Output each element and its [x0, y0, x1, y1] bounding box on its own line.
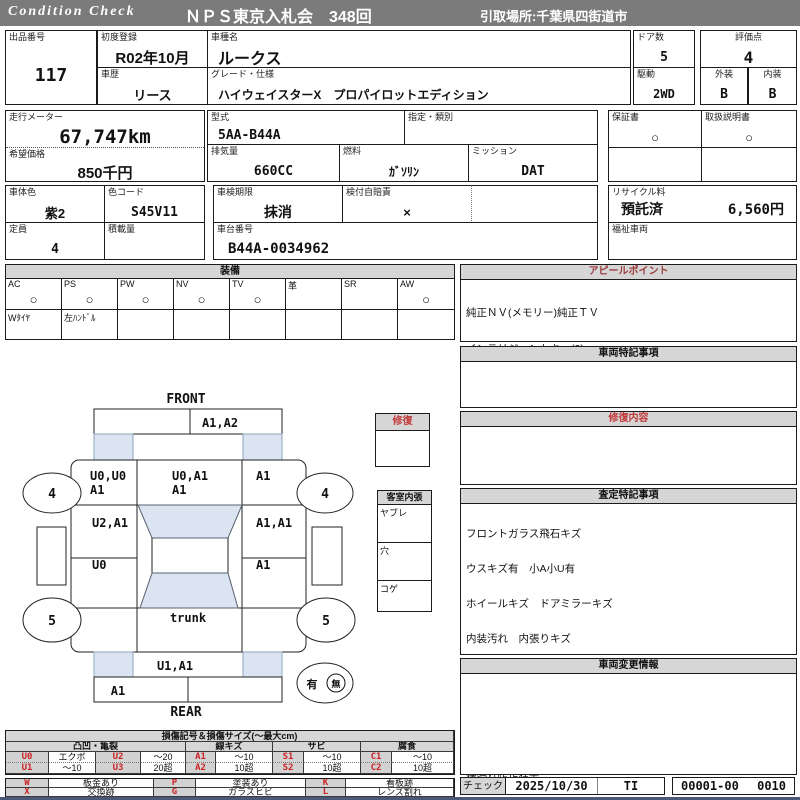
panel-rear-door-right: A1 [256, 558, 270, 572]
equipment-note-ps: 左ﾊﾝﾄﾞﾙ [62, 309, 118, 340]
damage-marks-table: W 板金あり P 塗装あり K 看板跡 X 交換跡 G ガラスヒビ L レンズ割… [5, 778, 455, 798]
legend-code: C2 [361, 763, 392, 774]
lot-number-value: 117 [6, 31, 96, 112]
cabin-interior-box: 客室内張 ヤブレ 穴 コゲ [377, 490, 432, 612]
displacement-label: 排気量 [211, 146, 238, 156]
legend-code: S2 [273, 763, 304, 774]
recycle-fee-label: リサイクル料 [612, 187, 666, 197]
cabin-row-burn: コゲ [378, 580, 431, 611]
exterior-grade-cell: 外装 B [700, 67, 748, 105]
equipment-label: TV [232, 279, 244, 289]
model-code-cell: 型式 5AA-B44A [207, 110, 405, 145]
type-box: 型式 5AA-B44A 指定・類別 排気量 660CC 燃料 ｶﾞｿﾘﾝ ミッシ… [207, 110, 598, 182]
legend-code: U1 [6, 763, 49, 774]
color-code-cell: 色コード S45V11 [104, 185, 205, 223]
history-label: 車歴 [101, 69, 119, 79]
cabin-interior-title: 客室内張 [378, 491, 431, 505]
assessment-line: フロントガラス飛石キズ [466, 529, 791, 541]
legend-mark-code: L [306, 788, 346, 797]
panel-hood-left-2: A1 [90, 483, 104, 497]
cabin-row-hole: 穴 [378, 542, 431, 580]
equipment-cell-sr: SR [342, 278, 398, 309]
equipment-note-tv [230, 309, 286, 340]
score-label: 評価点 [701, 32, 796, 42]
welfare-label: 福祉車両 [612, 224, 648, 234]
body-color-cell: 車体色 紫2 [5, 185, 105, 223]
equipment-title: 装備 [6, 265, 454, 279]
repair-detail-body [461, 427, 796, 431]
legend-mark-code: W [6, 779, 49, 788]
legend-category: サビ [273, 742, 361, 752]
vin-cell: 車台番号 B44A-0034962 [213, 222, 598, 260]
recycle-fee-cell: リサイクル料 預託済 6,560円 [608, 185, 797, 223]
color-box: 車体色 紫2 色コード S45V11 定員 4 積載量 [5, 185, 205, 260]
equipment-cell-leather: 革 [286, 278, 342, 309]
vin-label: 車台番号 [217, 224, 253, 234]
assessment-line: 内装汚れ 内張りキズ [466, 634, 791, 646]
inspection-expiry-cell: 車検期限 抹消 [213, 185, 343, 223]
welfare-cell: 福祉車両 [608, 222, 797, 260]
change-info-body [461, 674, 796, 678]
assessment-title: 査定特記事項 [461, 489, 796, 504]
recycle-box: リサイクル料 預託済 6,560円 福祉車両 [608, 185, 797, 260]
grade-cell: グレード・仕様 ハイウェイスターX プロパイロットエディション [207, 67, 631, 105]
presence-no-label: 無 [331, 678, 340, 690]
legend-size: 〜10 [49, 763, 96, 774]
drive-label: 駆動 [637, 69, 655, 79]
panel-rear: U1,A1 [157, 659, 193, 673]
load-label: 積載量 [108, 224, 135, 234]
manual-cell: 取扱説明書 ○ [701, 110, 797, 148]
vehicle-notes-body [461, 362, 796, 366]
odometer-price-box: 走行メーター 67,747km 希望価格 850千円 [5, 110, 205, 182]
doors-label: ドア数 [637, 32, 664, 42]
panel-front-door-right: A1,A1 [256, 516, 292, 530]
legend-code: U3 [96, 763, 141, 774]
repair-detail-panel: 修復内容 [460, 411, 797, 485]
equipment-note-nv [174, 309, 230, 340]
equipment-label: AC [8, 279, 21, 289]
legend-mark-code: X [6, 788, 49, 797]
class-label: 指定・類別 [408, 112, 453, 122]
capacity-label: 定員 [9, 224, 27, 234]
check-box: チェック 2025/10/30 TI [460, 777, 665, 795]
wheel-rear-right-value: 5 [322, 614, 330, 629]
rear-label: REAR [170, 705, 201, 720]
equipment-note-pw [118, 309, 174, 340]
equipment-table: 装備 AC○ PS○ PW○ NV○ TV○ 革 SR AW○ Wﾀｲﾔ 左ﾊﾝ… [5, 264, 455, 340]
legend-size: エクボ [49, 752, 96, 763]
check-inspector: TI [598, 778, 664, 794]
documents-empty-1 [608, 147, 702, 182]
first-registration-cell: 初度登録 R02年10月 [97, 30, 208, 68]
legend-size: 10超 [392, 763, 454, 774]
odometer-cell: 走行メーター 67,747km [6, 111, 204, 148]
check-code-2: 0010 [757, 778, 786, 794]
odometer-label: 走行メーター [9, 112, 63, 122]
legend-size: 〜10 [304, 752, 361, 763]
panel-front-bumper: A1,A2 [202, 416, 238, 430]
equipment-cell-nv: NV○ [174, 278, 230, 309]
legend-code: A2 [186, 763, 216, 774]
legend-mark-code: G [154, 788, 196, 797]
documents-box: 保証書 ○ 取扱説明書 ○ [608, 110, 797, 182]
repair-flag-title: 修復 [376, 414, 429, 431]
panel-front-door-left: U2,A1 [92, 516, 128, 530]
legend-mark-desc: 交換跡 [49, 788, 154, 797]
model-label: 車種名 [211, 32, 238, 42]
panel-hood-right: A1 [256, 469, 270, 483]
check-label: チェック [461, 778, 506, 794]
insurance-label: 検付自賠責 [346, 187, 391, 197]
equipment-label: 革 [288, 279, 297, 292]
equipment-cell-pw: PW○ [118, 278, 174, 309]
wheel-front-right-value: 4 [321, 487, 329, 502]
pickup-location: 引取場所:千葉県四街道市 [480, 6, 627, 25]
equipment-cell-ps: PS○ [62, 278, 118, 309]
legend-size: 〜20 [141, 752, 186, 763]
legend-size: 20超 [141, 763, 186, 774]
legend-size: 10超 [216, 763, 273, 774]
legend-mark-code: P [154, 779, 196, 788]
equipment-label: PW [120, 279, 135, 289]
wheel-front-left-value: 4 [48, 487, 56, 502]
cabin-row-tear: ヤブレ [378, 505, 431, 542]
legend-size: 〜10 [216, 752, 273, 763]
check-code-1: 00001-00 [681, 778, 739, 794]
documents-empty-2 [701, 147, 797, 182]
equipment-note: 左ﾊﾝﾄﾞﾙ [64, 311, 96, 324]
model-code-label: 型式 [211, 112, 229, 122]
insurance-cell: 検付自賠責 × [342, 185, 472, 223]
vehicle-notes-panel: 車両特記事項 [460, 346, 797, 408]
fuel-cell: 燃料 ｶﾞｿﾘﾝ [339, 144, 469, 182]
legend-category: 線キズ [186, 742, 273, 752]
equipment-label: SR [344, 279, 357, 289]
equipment-label: PS [64, 279, 76, 289]
interior-grade-label: 内装 [749, 69, 796, 79]
equipment-cell-aw: AW○ [398, 278, 454, 309]
trunk-label: trunk [170, 611, 207, 625]
change-info-panel: 車両変更情報 [460, 658, 797, 775]
recycle-fee-value: 6,560円 [728, 199, 784, 219]
equipment-cell-ac: AC○ [6, 278, 62, 309]
panel-rear-bumper: A1 [111, 684, 125, 698]
panel-hood-center-1: U0,A1 [172, 469, 208, 483]
check-code-box: 00001-00 0010 [672, 777, 795, 795]
inspection-empty-cell [471, 185, 598, 223]
legend-code: C1 [361, 752, 392, 763]
color-code-label: 色コード [108, 187, 144, 197]
panel-hood-left-1: U0,U0 [90, 469, 126, 483]
equipment-label: AW [400, 279, 414, 289]
equipment-cell-tv: TV○ [230, 278, 286, 309]
drive-cell: 駆動 2WD [633, 67, 695, 105]
legend-size: 〜10 [392, 752, 454, 763]
grade-label: グレード・仕様 [211, 69, 274, 79]
equipment-note-leather [286, 309, 342, 340]
warranty-label: 保証書 [612, 112, 639, 122]
wheel-rear-left-value: 5 [48, 614, 56, 629]
displacement-cell: 排気量 660CC [207, 144, 340, 182]
equipment-note-aw [398, 309, 454, 340]
repair-detail-title: 修復内容 [461, 412, 796, 427]
first-registration-label: 初度登録 [101, 32, 137, 42]
legend-category: 腐食 [361, 742, 454, 752]
asking-price-cell: 希望価格 850千円 [6, 148, 204, 181]
legend-code: S1 [273, 752, 304, 763]
auction-sheet: Condition Check ＮＰＳ東京入札会 348回 引取場所:千葉県四街… [0, 0, 800, 800]
assessment-line: ウスキズ有 小A小U有 [466, 564, 791, 576]
lot-number-label: 出品番号 [9, 32, 45, 42]
legend-mark-desc: 板金あり [49, 779, 154, 788]
legend-code: U0 [6, 752, 49, 763]
doors-cell: ドア数 5 [633, 30, 695, 68]
vehicle-notes-title: 車両特記事項 [461, 347, 796, 362]
legend-category: 凸凹・亀裂 [6, 742, 186, 752]
presence-yes-label: 有 [307, 677, 318, 691]
appeal-panel: アピールポイント 純正ＮＶ(メモリー)純正ＴＶ インテリジェントキー(2) 左右… [460, 264, 797, 342]
model-cell: 車種名 ルークス [207, 30, 631, 68]
legend-title: 損傷記号＆損傷サイズ(〜最大cm) [6, 731, 454, 742]
recycle-status: 預託済 [621, 199, 663, 219]
appeal-title: アピールポイント [461, 265, 796, 280]
lot-number-cell: 出品番号 117 [5, 30, 97, 105]
transmission-label: ミッション [472, 146, 517, 156]
legend-mark-desc: レンズ割れ [346, 788, 454, 797]
vin-value: B44A-0034962 [214, 223, 611, 267]
auction-title: ＮＰＳ東京入札会 348回 [185, 3, 372, 27]
legend-code: U2 [96, 752, 141, 763]
legend-mark-desc: 塗装あり [196, 779, 306, 788]
brand-logo: Condition Check [8, 4, 136, 20]
equipment-note-sr [342, 309, 398, 340]
load-cell: 積載量 [104, 222, 205, 260]
repair-flag-box: 修復 [375, 413, 430, 467]
transmission-cell: ミッション DAT [468, 144, 598, 182]
damage-legend-table: 損傷記号＆損傷サイズ(〜最大cm) 凸凹・亀裂 線キズ サビ 腐食 U0 エクボ… [5, 730, 455, 775]
front-label: FRONT [166, 392, 205, 407]
interior-grade-cell: 内装 B [748, 67, 797, 105]
panel-rear-door-left: U0 [92, 558, 106, 572]
assessment-panel: 査定特記事項 フロントガラス飛石キズ ウスキズ有 小A小U有 ホイールキズ ドア… [460, 488, 797, 655]
fuel-label: 燃料 [343, 146, 361, 156]
score-cell: 評価点 4 [700, 30, 797, 68]
check-date: 2025/10/30 [506, 778, 598, 794]
panel-hood-center-2: A1 [172, 483, 186, 497]
history-cell: 車歴 リース [97, 67, 208, 105]
legend-mark-desc: 看板跡 [346, 779, 454, 788]
class-cell: 指定・類別 [404, 110, 598, 145]
change-info-title: 車両変更情報 [461, 659, 796, 674]
legend-size: 10超 [304, 763, 361, 774]
inspection-box: 車検期限 抹消 検付自賠責 × 車台番号 B44A-0034962 [213, 185, 598, 260]
legend-mark-desc: ガラスヒビ [196, 788, 306, 797]
asking-price-label: 希望価格 [9, 149, 45, 159]
equipment-note: Wﾀｲﾔ [8, 311, 30, 324]
body-color-label: 車体色 [9, 187, 36, 197]
inspection-expiry-label: 車検期限 [217, 187, 253, 197]
presence-oval [297, 663, 353, 703]
legend-code: A1 [186, 752, 216, 763]
manual-label: 取扱説明書 [705, 112, 750, 122]
assessment-line: ホイールキズ ドアミラーキズ [466, 599, 791, 611]
header-bar: Condition Check ＮＰＳ東京入札会 348回 引取場所:千葉県四街… [0, 0, 800, 26]
capacity-cell: 定員 4 [5, 222, 105, 260]
legend-mark-code: K [306, 779, 346, 788]
warranty-cell: 保証書 ○ [608, 110, 702, 148]
exterior-grade-label: 外装 [701, 69, 747, 79]
appeal-line: 純正ＮＶ(メモリー)純正ＴＶ [466, 307, 791, 319]
equipment-label: NV [176, 279, 189, 289]
equipment-note-ac: Wﾀｲﾔ [6, 309, 62, 340]
